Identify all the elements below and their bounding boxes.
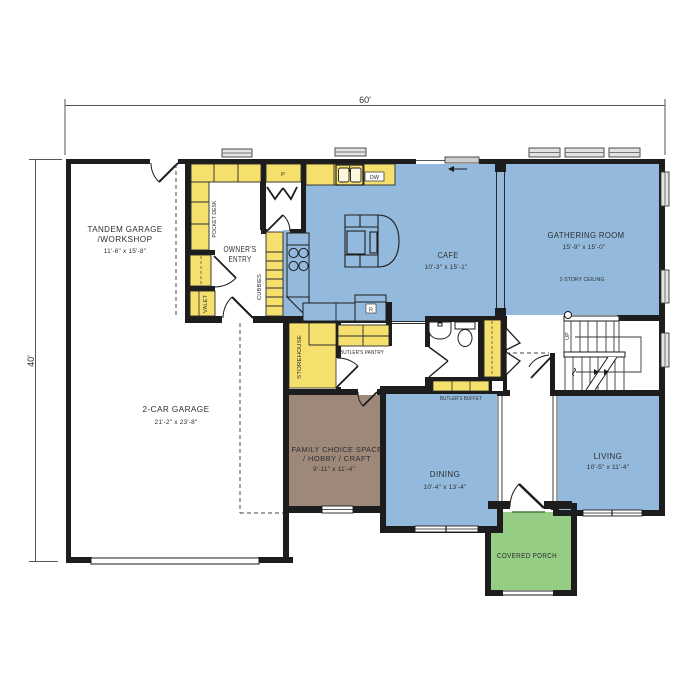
svg-text:DINING: DINING: [430, 470, 460, 479]
svg-text:21'-2" x 23'-8": 21'-2" x 23'-8": [155, 419, 198, 426]
svg-text:40': 40': [26, 355, 36, 367]
svg-text:/WORKSHOP: /WORKSHOP: [98, 235, 153, 244]
svg-text:UP: UP: [565, 332, 571, 340]
svg-text:FAMILY CHOICE SPACE: FAMILY CHOICE SPACE: [292, 445, 383, 454]
svg-text:R: R: [369, 308, 373, 314]
svg-text:COVERED PORCH: COVERED PORCH: [497, 551, 557, 560]
svg-text:15'-9" x 15'-0": 15'-9" x 15'-0": [563, 244, 606, 251]
svg-text:10'-3" x 15'-1": 10'-3" x 15'-1": [425, 264, 468, 271]
svg-text:11'-6" x 15'-8": 11'-6" x 15'-8": [104, 248, 147, 255]
svg-text:9'-11" x 11'-4": 9'-11" x 11'-4": [313, 466, 356, 473]
svg-text:DW: DW: [370, 175, 380, 181]
svg-text:60': 60': [359, 95, 371, 105]
svg-text:CAFE: CAFE: [438, 251, 459, 260]
svg-text:BUTLER'S BUFFET: BUTLER'S BUFFET: [440, 396, 482, 402]
svg-text:TANDEM GARAGE: TANDEM GARAGE: [88, 225, 163, 234]
svg-text:2-CAR GARAGE: 2-CAR GARAGE: [143, 405, 210, 414]
svg-text:VALET: VALET: [203, 294, 209, 313]
svg-text:10'-5" x 11'-4": 10'-5" x 11'-4": [587, 464, 630, 471]
svg-text:P: P: [281, 172, 285, 178]
svg-text:/ HOBBY / CRAFT: / HOBBY / CRAFT: [303, 454, 371, 463]
svg-text:OWNER'S: OWNER'S: [224, 245, 257, 254]
svg-text:POCKET DESK: POCKET DESK: [212, 200, 218, 237]
svg-text:STOREHOUSE: STOREHOUSE: [297, 335, 303, 379]
svg-text:LIVING: LIVING: [594, 452, 623, 461]
svg-text:2-STORY CEILING: 2-STORY CEILING: [560, 277, 605, 283]
svg-text:CUBBIES: CUBBIES: [257, 274, 263, 300]
svg-text:10'-4" x 13'-4": 10'-4" x 13'-4": [424, 484, 467, 491]
svg-text:ENTRY: ENTRY: [229, 255, 252, 264]
svg-text:BUTLER'S PANTRY: BUTLER'S PANTRY: [340, 350, 384, 356]
svg-text:GATHERING ROOM: GATHERING ROOM: [548, 231, 625, 240]
